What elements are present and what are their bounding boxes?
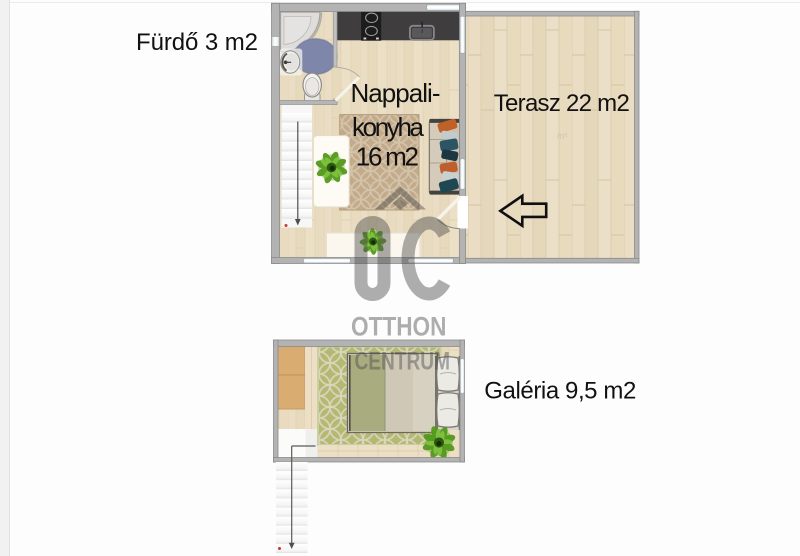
svg-text:m²: m²: [557, 131, 568, 141]
svg-text:CENTRUM: CENTRUM: [355, 348, 451, 376]
svg-text:Galéria 9,5 m2: Galéria 9,5 m2: [484, 378, 636, 405]
svg-text:OTTHON: OTTHON: [351, 312, 447, 342]
svg-text:Terasz 22 m2: Terasz 22 m2: [494, 90, 630, 117]
svg-text:Fürdő 3 m2: Fürdő 3 m2: [136, 29, 258, 56]
svg-text:16 m2: 16 m2: [356, 142, 419, 172]
svg-text:konyha: konyha: [352, 112, 425, 142]
svg-text:Nappali-: Nappali-: [351, 78, 441, 108]
